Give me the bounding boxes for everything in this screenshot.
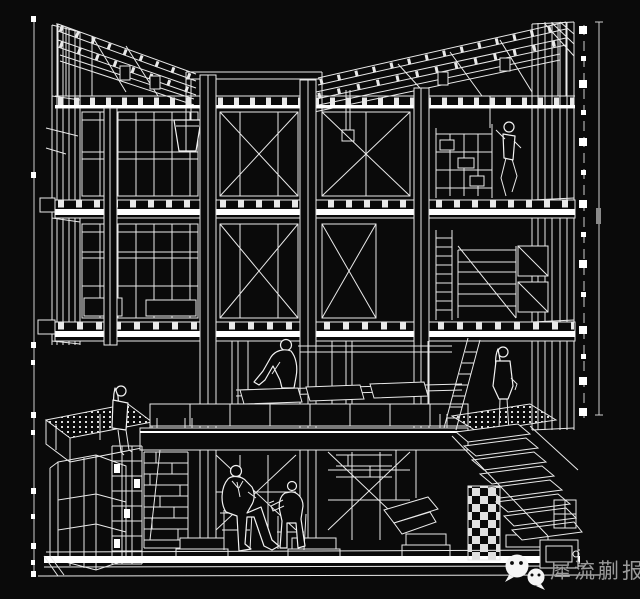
hanger-rods bbox=[186, 79, 490, 141]
window-bay-mid-left bbox=[82, 224, 198, 318]
watermark: 犀流蒯报 bbox=[505, 555, 640, 591]
climbing-figure bbox=[496, 122, 521, 196]
left-roof-wing bbox=[58, 24, 196, 105]
cross-brace-upper-1 bbox=[220, 112, 298, 196]
ladder-rack-mid bbox=[436, 230, 548, 320]
right-vertical-rule bbox=[595, 22, 603, 415]
watermark-text: 犀流蒯报 bbox=[550, 559, 640, 583]
shelf-rack-upper bbox=[436, 124, 492, 198]
right-wall bbox=[532, 22, 574, 430]
right-dimension-line bbox=[579, 25, 587, 418]
planter-box bbox=[46, 404, 152, 462]
hanging-duct bbox=[384, 450, 438, 534]
left-dimension-line bbox=[31, 16, 36, 577]
wechat-bubble-icon bbox=[505, 555, 529, 583]
cross-brace-mid-2 bbox=[322, 224, 376, 318]
sitting-figure-bench bbox=[254, 340, 297, 389]
screenshot-root: 犀流蒯报 bbox=[0, 0, 640, 599]
wechat-bubble-icon-small bbox=[528, 569, 546, 591]
cross-brace-upper-2 bbox=[322, 112, 410, 196]
hanging-bucket bbox=[174, 120, 201, 151]
section-drawing: 犀流蒯报 bbox=[0, 0, 640, 599]
cross-brace-mid-1 bbox=[220, 224, 298, 318]
shelf-grid-wall bbox=[112, 446, 142, 564]
sitting-man-left bbox=[220, 466, 279, 552]
checker-wall bbox=[468, 486, 500, 560]
left-wall bbox=[46, 23, 80, 345]
